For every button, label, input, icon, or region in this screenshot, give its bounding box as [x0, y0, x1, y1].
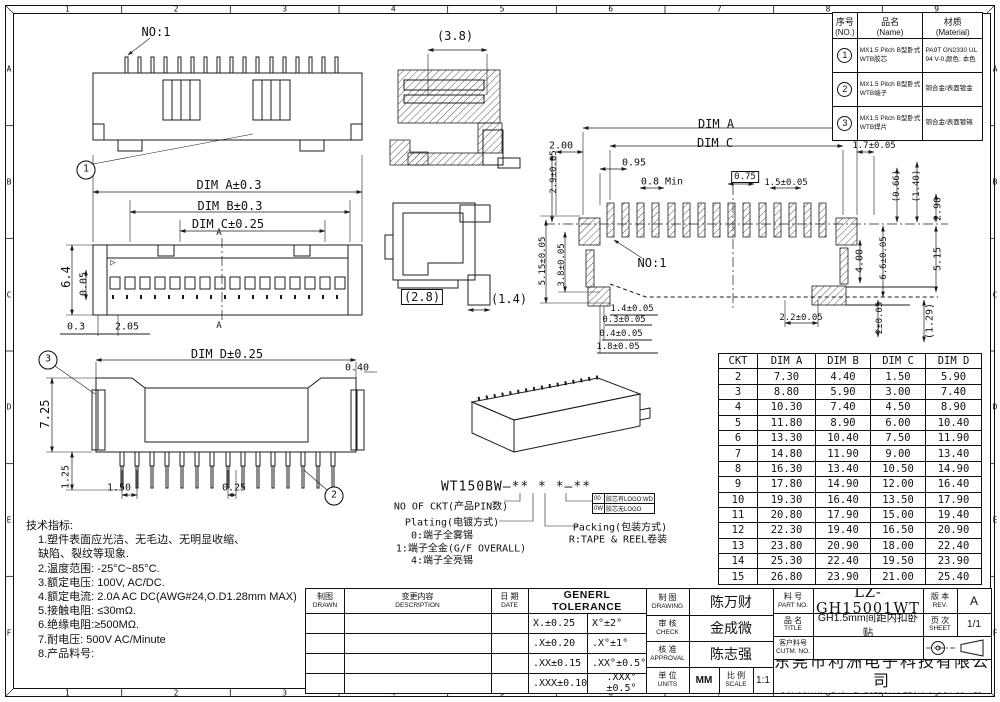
zone-col-label: 4 [391, 5, 396, 14]
customer-no-label: 客户料号CUTM. NO. [773, 636, 813, 659]
description-header: 变更内容DESCRIPTION [344, 589, 491, 613]
col-dim-d: DIM D [926, 354, 982, 369]
company-name-en: DONGGUAN LIZHOU EL ECTRONIC TECHNOLOGY C… [781, 692, 983, 693]
approval-name: 陈志强 [689, 641, 773, 667]
zone-row-label: B [7, 178, 12, 187]
part-no-label: 料 号PART NO. [773, 589, 813, 613]
company: 东莞市利洲电子科技有限公司 DONGGUAN LIZHOU EL ECTRONI… [773, 659, 991, 693]
tolerance-cell: .XXX°±0.5° [587, 673, 651, 693]
logo-option-row: 0W 胶芯无LOGO [593, 504, 655, 514]
zone-col-label: 6 [608, 5, 613, 14]
tolerance-cell: .X±0.20 [528, 633, 592, 653]
zone-col-label: 2 [174, 689, 179, 698]
bom-row: 3 MX1.5 Pitch B型卧式 WTB焊片 铜合金/表面镀锡 [833, 107, 983, 141]
zone-col-label: 2 [174, 5, 179, 14]
sheet-value: 1/1 [957, 613, 991, 636]
note-line: 4.额定电流: 2.0A AC DC(AWG#24,O.D1.28mm MAX) [26, 590, 326, 604]
projection-symbol [923, 636, 991, 659]
tolerance-title: GENERL TOLERANCE [528, 589, 646, 613]
col-dim-a: DIM A [758, 354, 816, 369]
table-row: 5 11.80 8.90 6.00 10.40 [719, 415, 982, 430]
tolerance-cell: .XX°±0.5° [587, 653, 651, 673]
note-line: 1.塑件表面应光洁、无毛边、无明显收缩、 [26, 533, 326, 547]
rev-value: A [957, 589, 991, 613]
note-line: 8.产品料号: [26, 647, 326, 661]
note-line: 2.温度范围: -25°C~85°C. [26, 562, 326, 576]
part-number: LZ-GH15001WT [813, 589, 923, 613]
tolerance-cell: X°±2° [587, 613, 651, 633]
col-dim-c: DIM C [871, 354, 926, 369]
table-row: 12 22.30 19.40 16.50 20.90 [719, 523, 982, 538]
table-row: 2 7.30 4.40 1.50 5.90 [719, 369, 982, 384]
tolerance-cell: .XXX±0.10 [528, 673, 592, 693]
title-label: 品 名TITLE [773, 613, 813, 636]
zone-row-label: E [7, 516, 12, 525]
note-line: 5.接触电阻: ≤30mΩ. [26, 604, 326, 618]
bom-item-name: MX1.5 Pitch B型卧式 WTB胶芯 [857, 39, 923, 73]
bom-header-no: 序号(NO.) [833, 13, 858, 39]
units-value: MM [689, 667, 719, 693]
table-row: 3 8.80 5.90 3.00 7.40 [719, 384, 982, 399]
customer-no-value [813, 636, 923, 659]
drawing-sheet: .ln{stroke:#1c1c1c;fill:none;stroke-widt… [0, 0, 1000, 702]
zone-row-label: A [7, 65, 12, 74]
logo-option-table: 00 胶芯有LOGO:WD 0W 胶芯无LOGO [592, 493, 655, 514]
scale-value: 1:1 [753, 667, 773, 693]
zone-col-label: 1 [65, 689, 70, 698]
zone-col-label: 8 [826, 5, 831, 14]
sheet-label: 页 次SHEET [923, 613, 957, 636]
zone-row-label: C [993, 290, 998, 299]
drawing-label: 制 图DRAWING [646, 589, 689, 615]
bom-item-number: 3 [837, 116, 852, 131]
table-row: 8 16.30 13.40 10.50 14.90 [719, 461, 982, 476]
zone-col-label: 3 [282, 5, 287, 14]
scale-label: 比 例SCALE [719, 667, 753, 693]
bom-item-material: PA9T GN2330 UL 94 V-0,颜色: 本色 [923, 39, 983, 73]
dimension-table-header: CKT DIM A DIM B DIM C DIM D [719, 354, 982, 369]
bom-header-material: 材质(Material) [923, 13, 983, 39]
table-row: 11 20.80 17.90 15.00 19.40 [719, 507, 982, 522]
note-line: 7.耐电压: 500V AC/Minute [26, 633, 326, 647]
bom-header-name: 品名(Name) [857, 13, 923, 39]
drawing-name: 陈万财 [689, 589, 773, 615]
bom-table: 序号(NO.) 品名(Name) 材质(Material) 1 MX1.5 Pi… [832, 12, 983, 141]
note-line: 缺陷、裂纹等现象. [26, 547, 326, 561]
zone-col-label: 7 [717, 5, 722, 14]
date-header: 日 期DATE [491, 589, 528, 613]
units-label: 单 位UNITS [646, 667, 689, 693]
check-name: 金成微 [689, 615, 773, 641]
title-block: 制图DRAWN 变更内容DESCRIPTION 日 期DATE GENERL T… [305, 588, 992, 694]
tolerance-cell: .X°±1° [587, 633, 651, 653]
table-row: 6 13.30 10.40 7.50 11.90 [719, 430, 982, 445]
bom-item-material: 铜合金/表面镀锡 [923, 107, 983, 141]
bom-item-number: 1 [837, 48, 852, 63]
table-row: 9 17.80 14.90 12.00 16.40 [719, 477, 982, 492]
logo-option-row: 00 胶芯有LOGO:WD [593, 494, 655, 504]
col-ckt: CKT [719, 354, 758, 369]
note-line: 技术指标: [26, 519, 326, 533]
bom-row: 2 MX1.5 Pitch B型卧式 WTB端子 铜合金/表面镀金 [833, 73, 983, 107]
tolerance-cell: .XX±0.15 [528, 653, 592, 673]
tolerance-cell: X.±0.25 [528, 613, 592, 633]
zone-col-label: 3 [282, 689, 287, 698]
rev-label: 版 本REV. [923, 589, 957, 613]
bom-item-name: MX1.5 Pitch B型卧式 WTB端子 [857, 73, 923, 107]
table-row: 15 26.80 23.90 21.00 25.40 [719, 569, 982, 584]
table-row: 4 10.30 7.40 4.50 8.90 [719, 400, 982, 415]
zone-col-label: 5 [500, 5, 505, 14]
table-row: 10 19.30 16.40 13.50 17.90 [719, 492, 982, 507]
bom-item-material: 铜合金/表面镀金 [923, 73, 983, 107]
zone-row-label: E [993, 516, 998, 525]
approval-label: 核 准APPROVAL [646, 641, 689, 667]
col-dim-b: DIM B [816, 354, 871, 369]
dimension-table: CKT DIM A DIM B DIM C DIM D 2 7.30 4.40 … [718, 353, 982, 585]
table-row: 14 25.30 22.40 19.50 23.90 [719, 554, 982, 569]
note-line: 3.额定电压: 100V, AC/DC. [26, 576, 326, 590]
part-title: GH1.5mm间距内扣卧贴 [813, 613, 923, 636]
zone-row-label: F [993, 628, 998, 637]
table-row: 7 14.80 11.90 9.00 13.40 [719, 446, 982, 461]
bom-row: 1 MX1.5 Pitch B型卧式 WTB胶芯 PA9T GN2330 UL … [833, 39, 983, 73]
zone-row-label: A [993, 65, 998, 74]
zone-col-label: 1 [65, 5, 70, 14]
zone-row-label: C [7, 290, 12, 299]
bom-item-name: MX1.5 Pitch B型卧式 WTB焊片 [857, 107, 923, 141]
table-row: 13 23.80 20.90 18.00 22.40 [719, 538, 982, 553]
zone-row-label: D [7, 403, 12, 412]
note-line: 6.绝缘电阻:≥500MΩ. [26, 618, 326, 632]
zone-row-label: B [993, 178, 998, 187]
zone-row-label: F [7, 628, 12, 637]
company-name-cn: 东莞市利洲电子科技有限公司 [773, 659, 991, 692]
bom-item-number: 2 [837, 82, 852, 97]
zone-row-label: D [993, 403, 998, 412]
third-angle-projection-icon [925, 638, 989, 658]
technical-notes: 技术指标:1.塑件表面应光洁、无毛边、无明显收缩、缺陷、裂纹等现象.2.温度范围… [26, 519, 326, 661]
check-label: 审 核CHECK [646, 615, 689, 641]
